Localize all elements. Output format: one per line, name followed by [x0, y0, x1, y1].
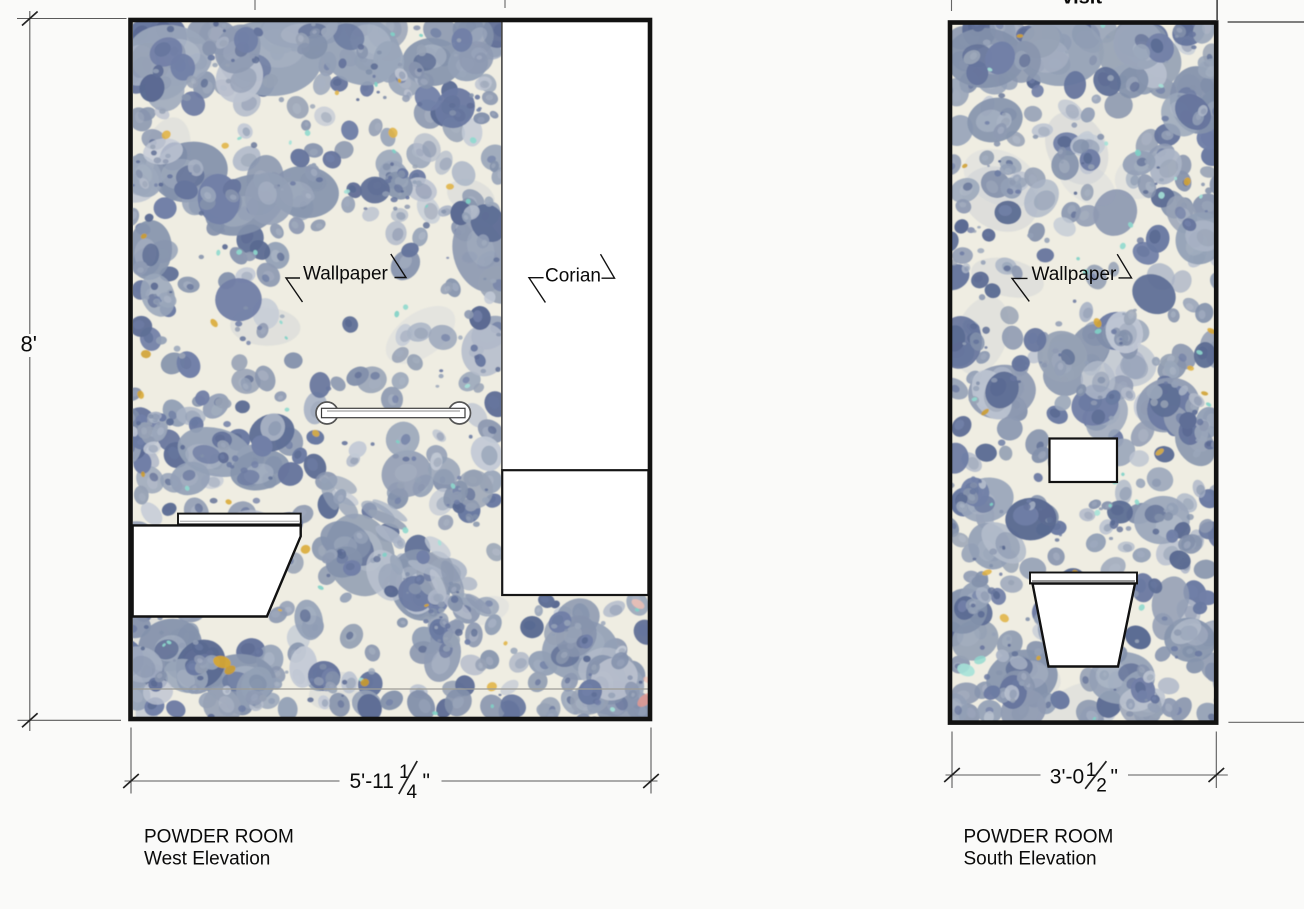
- svg-text:": ": [423, 770, 430, 793]
- svg-text:South Elevation: South Elevation: [964, 848, 1097, 869]
- svg-text:1: 1: [1086, 760, 1097, 781]
- svg-text:1: 1: [399, 762, 410, 783]
- svg-text:8': 8': [21, 332, 37, 357]
- svg-text:POWDER ROOM: POWDER ROOM: [964, 827, 1114, 848]
- svg-text:visit: visit: [1062, 0, 1102, 9]
- svg-text:2: 2: [1096, 776, 1107, 797]
- svg-text:3'-0: 3'-0: [1050, 766, 1084, 789]
- svg-text:West Elevation: West Elevation: [144, 848, 270, 869]
- svg-text:POWDER ROOM: POWDER ROOM: [144, 827, 294, 848]
- svg-text:Wallpaper: Wallpaper: [303, 264, 389, 285]
- svg-text:5'-11: 5'-11: [350, 770, 394, 793]
- svg-text:4: 4: [407, 782, 418, 803]
- svg-text:Corian: Corian: [545, 266, 601, 287]
- svg-text:": ": [1111, 766, 1118, 789]
- svg-text:Wallpaper: Wallpaper: [1032, 264, 1118, 285]
